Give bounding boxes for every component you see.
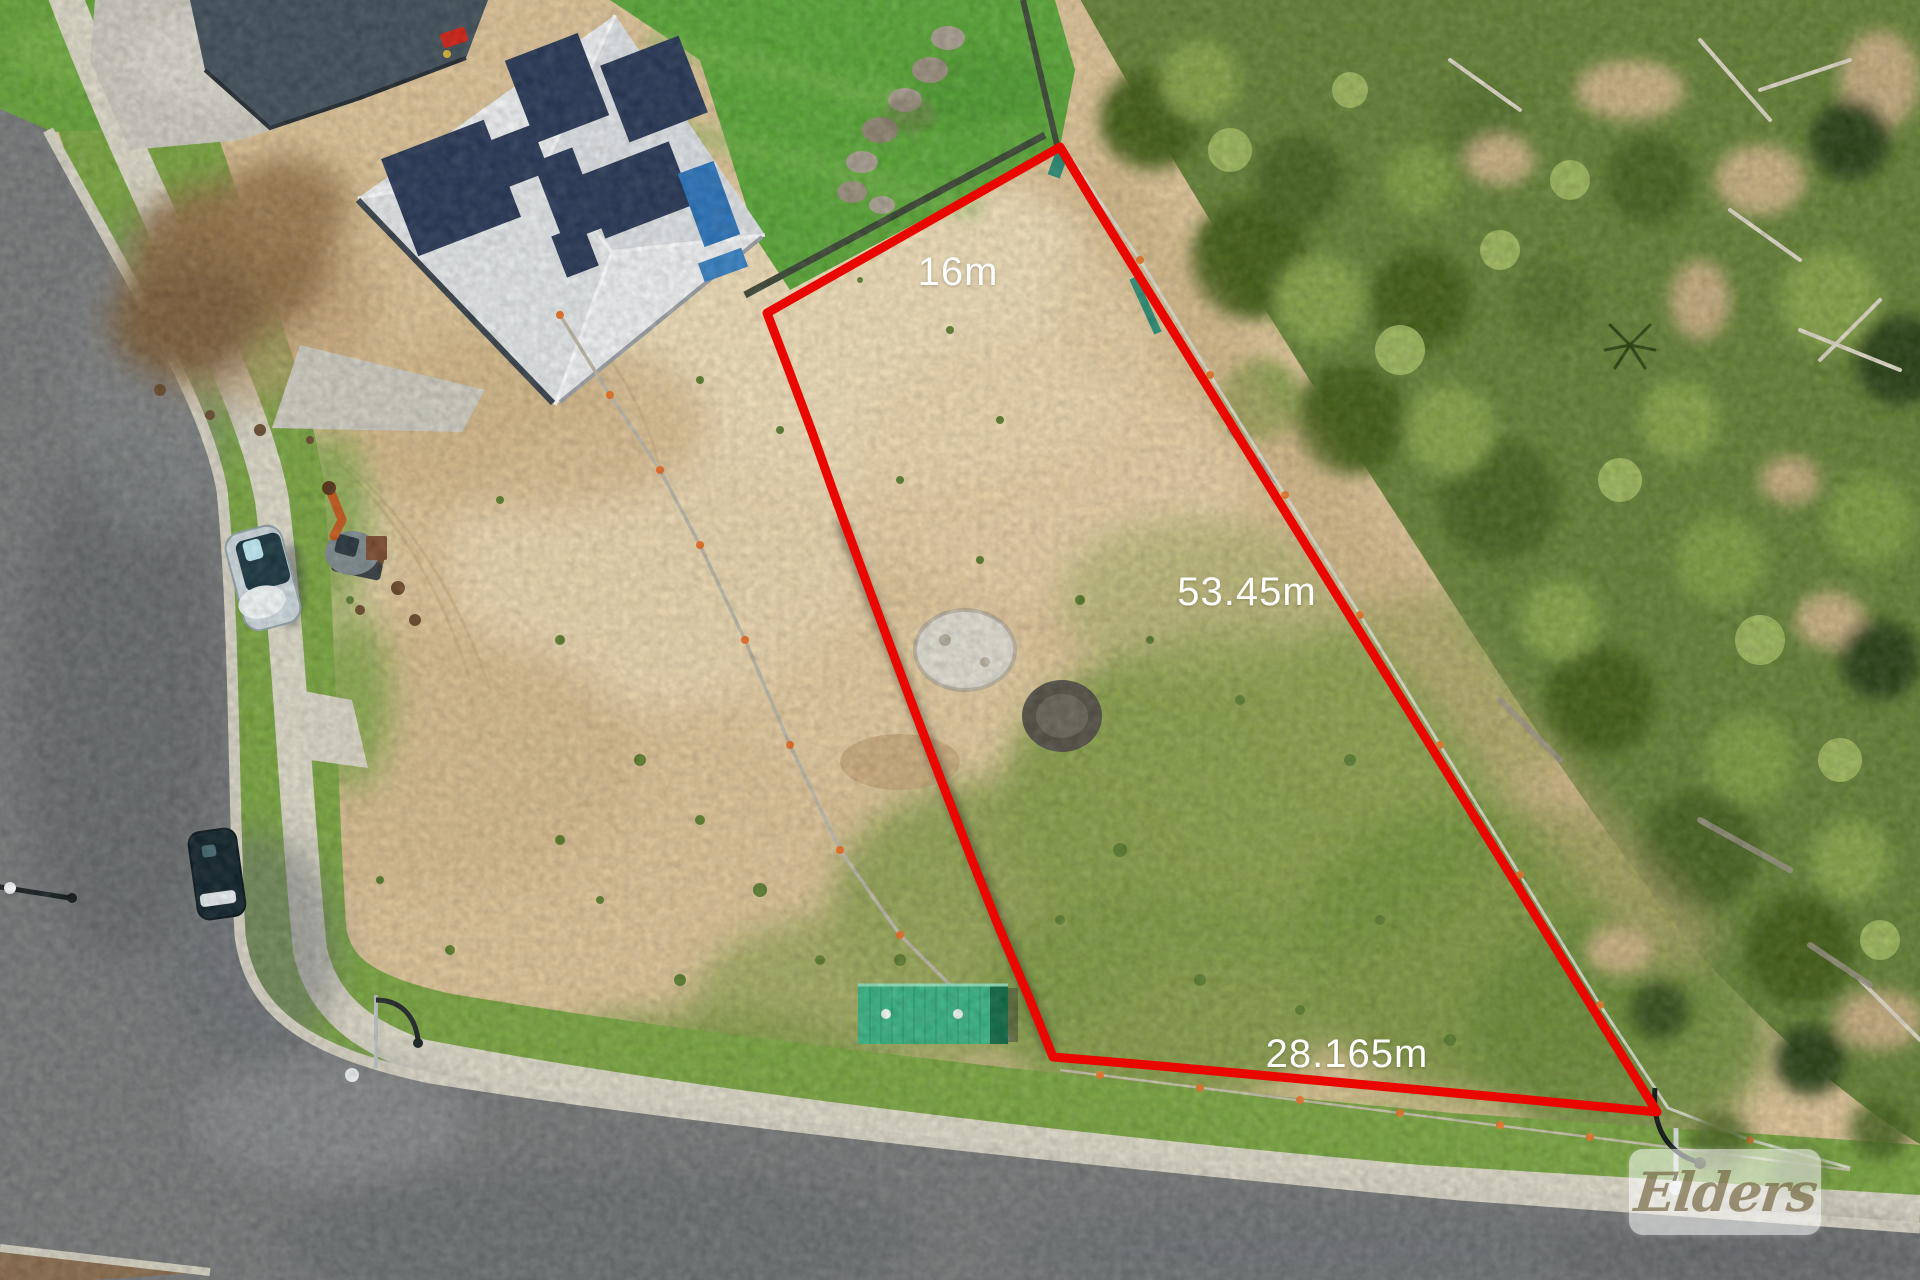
measurement-label-right-boundary: 53.45m xyxy=(1177,572,1316,612)
measurement-label-top-boundary: 16m xyxy=(918,252,999,292)
grain-light xyxy=(0,0,1920,1280)
elders-watermark-text: Elders xyxy=(1631,1160,1818,1224)
aerial-photo: 16m 53.45m 28.165m Elders xyxy=(0,0,1920,1280)
aerial-scene xyxy=(0,0,1920,1280)
measurement-label-bottom-boundary: 28.165m xyxy=(1266,1034,1429,1074)
elders-watermark-logo: Elders xyxy=(1629,1149,1821,1235)
